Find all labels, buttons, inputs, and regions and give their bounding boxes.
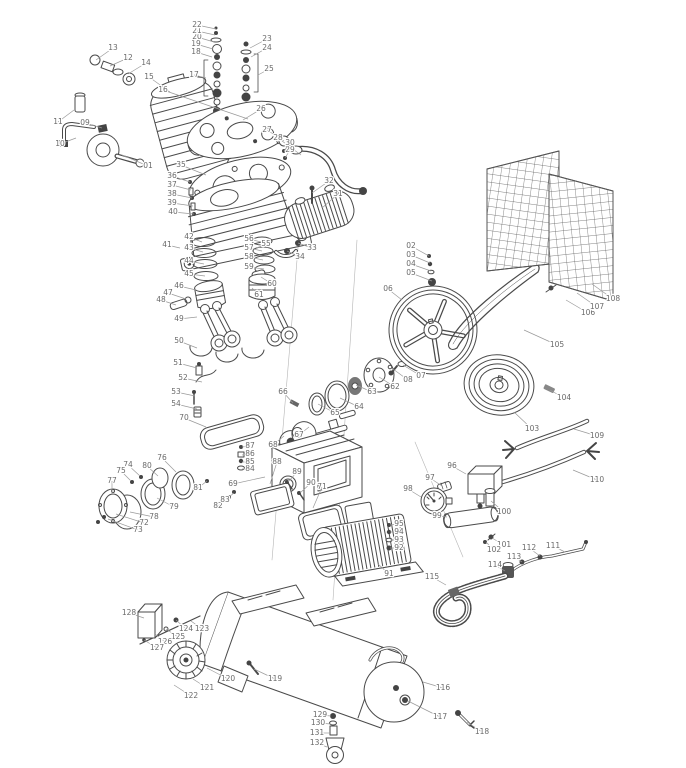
callout-46: 46	[174, 281, 184, 290]
connecting-rods-b	[259, 298, 298, 347]
callout-95: 95	[394, 519, 404, 528]
callout-04: 04	[406, 259, 416, 268]
callout-117: 117	[433, 712, 448, 721]
callout-27: 27	[262, 125, 272, 134]
callout-81: 81	[193, 483, 203, 492]
callout-24: 24	[262, 43, 272, 52]
callout-131: 131	[310, 728, 325, 737]
tank-fitting	[455, 710, 474, 728]
callout-16: 16	[158, 85, 168, 94]
callout-97: 97	[425, 473, 435, 482]
callout-58: 58	[244, 252, 254, 261]
callout-23: 23	[262, 34, 272, 43]
callout-35: 35	[176, 160, 186, 169]
callout-42: 42	[184, 232, 194, 241]
callout-105: 105	[550, 340, 565, 349]
callout-30: 30	[285, 138, 295, 147]
callout-128: 128	[122, 608, 137, 617]
callout-89: 89	[292, 467, 302, 476]
callout-49: 49	[174, 314, 184, 323]
callout-88: 88	[272, 457, 282, 466]
callout-13: 13	[108, 43, 118, 52]
callout-60: 60	[267, 279, 277, 288]
callout-41: 41	[162, 240, 172, 249]
callout-87: 87	[245, 441, 255, 450]
callout-113: 113	[507, 552, 522, 561]
bearing-covers	[96, 468, 236, 529]
callout-111: 111	[546, 541, 561, 550]
callout-96: 96	[447, 461, 457, 470]
callout-122: 122	[184, 691, 199, 700]
callout-36: 36	[167, 171, 177, 180]
callout-44: 44	[184, 256, 194, 265]
callout-125: 125	[171, 632, 186, 641]
callout-14: 14	[141, 58, 151, 67]
callout-130: 130	[311, 718, 326, 727]
air-tank	[200, 585, 424, 728]
callout-09: 09	[80, 118, 90, 127]
callout-38: 38	[167, 189, 177, 198]
callout-50: 50	[174, 336, 184, 345]
callout-57: 57	[244, 243, 254, 252]
callout-15: 15	[144, 72, 154, 81]
callout-12: 12	[123, 53, 133, 62]
callout-73: 73	[133, 525, 143, 534]
callout-56: 56	[244, 234, 254, 243]
callout-06: 06	[383, 284, 393, 293]
callout-31: 31	[333, 189, 343, 198]
callout-114: 114	[488, 560, 503, 569]
line-art	[59, 27, 613, 764]
callout-93: 93	[394, 535, 404, 544]
callout-33: 33	[307, 243, 317, 252]
callout-39: 39	[167, 198, 177, 207]
callout-85: 85	[245, 457, 255, 466]
callout-55: 55	[261, 239, 271, 248]
callout-108: 108	[606, 294, 621, 303]
base-plate	[198, 413, 266, 452]
callout-54: 54	[171, 399, 181, 408]
callout-78: 78	[149, 512, 159, 521]
callout-75: 75	[116, 466, 126, 475]
braided-hose	[436, 576, 505, 624]
belt-guard	[487, 151, 613, 301]
connecting-rods-a	[201, 302, 241, 352]
power-cable-1	[503, 421, 587, 458]
callout-112: 112	[522, 543, 537, 552]
callout-48: 48	[156, 295, 166, 304]
callout-28: 28	[273, 133, 283, 142]
callout-10: 10	[55, 139, 65, 148]
callout-94: 94	[394, 527, 404, 536]
callout-132: 132	[310, 738, 325, 747]
shroud-bracket	[138, 604, 162, 638]
callout-51: 51	[173, 358, 183, 367]
callout-53: 53	[171, 387, 181, 396]
callout-18: 18	[191, 47, 201, 56]
callout-68: 68	[268, 440, 278, 449]
callout-76: 76	[157, 453, 167, 462]
callout-59: 59	[244, 262, 254, 271]
callout-121: 121	[200, 683, 215, 692]
side-gasket	[250, 482, 295, 515]
case-bolt-stack	[238, 445, 245, 470]
callout-115: 115	[425, 572, 440, 581]
callout-52: 52	[178, 373, 188, 382]
callout-37: 37	[167, 180, 177, 189]
callout-79: 79	[169, 502, 179, 511]
callout-11: 11	[53, 117, 63, 126]
callout-120: 120	[221, 674, 236, 683]
callout-98: 98	[403, 484, 413, 493]
callout-40: 40	[168, 207, 178, 216]
callout-100: 100	[497, 507, 512, 516]
callout-91: 91	[384, 569, 394, 578]
callout-67: 67	[294, 430, 304, 439]
callout-66: 66	[278, 387, 288, 396]
callout-34: 34	[295, 252, 305, 261]
callout-01: 01	[143, 161, 153, 170]
manifold	[443, 489, 500, 545]
leader-line-69	[233, 477, 265, 484]
pressure-switch	[468, 466, 502, 509]
exploded-parts-diagram: 0102030405060708091011121314151617181920…	[0, 0, 686, 768]
callout-08: 08	[403, 375, 413, 384]
callout-118: 118	[475, 727, 490, 736]
callout-64: 64	[354, 402, 364, 411]
rod-caps	[190, 346, 264, 362]
callout-17: 17	[189, 70, 199, 79]
callout-63: 63	[367, 387, 377, 396]
callout-45: 45	[184, 269, 194, 278]
diagram-canvas: 0102030405060708091011121314151617181920…	[0, 0, 686, 768]
callout-83: 83	[220, 495, 230, 504]
callout-71: 71	[317, 482, 327, 491]
callout-110: 110	[590, 475, 605, 484]
callout-65: 65	[330, 408, 340, 417]
callout-22: 22	[192, 20, 202, 29]
callout-90: 90	[306, 478, 316, 487]
caster-assembly	[326, 713, 344, 764]
callout-26: 26	[256, 104, 266, 113]
callout-80: 80	[142, 461, 152, 470]
callout-07: 07	[416, 371, 426, 380]
callout-102: 102	[487, 545, 502, 554]
callout-69: 69	[228, 479, 238, 488]
callout-103: 103	[525, 424, 540, 433]
callout-05: 05	[406, 268, 416, 277]
callout-116: 116	[436, 683, 451, 692]
callout-43: 43	[184, 243, 194, 252]
callout-03: 03	[406, 250, 416, 259]
callout-70: 70	[179, 413, 189, 422]
road-wheel	[167, 641, 205, 679]
callout-107: 107	[590, 302, 605, 311]
callout-92: 92	[394, 543, 404, 552]
callout-123: 123	[195, 624, 210, 633]
callout-02: 02	[406, 241, 416, 250]
callout-25: 25	[264, 64, 274, 73]
callout-127: 127	[150, 643, 165, 652]
callout-104: 104	[557, 393, 572, 402]
callout-86: 86	[245, 449, 255, 458]
callout-61: 61	[254, 290, 264, 299]
callout-32: 32	[324, 176, 334, 185]
callout-109: 109	[590, 431, 605, 440]
crank-eye	[87, 134, 144, 167]
callout-119: 119	[268, 674, 283, 683]
pulley	[459, 349, 538, 420]
callout-99: 99	[432, 511, 442, 520]
callout-77: 77	[107, 476, 117, 485]
callout-62: 62	[390, 382, 400, 391]
